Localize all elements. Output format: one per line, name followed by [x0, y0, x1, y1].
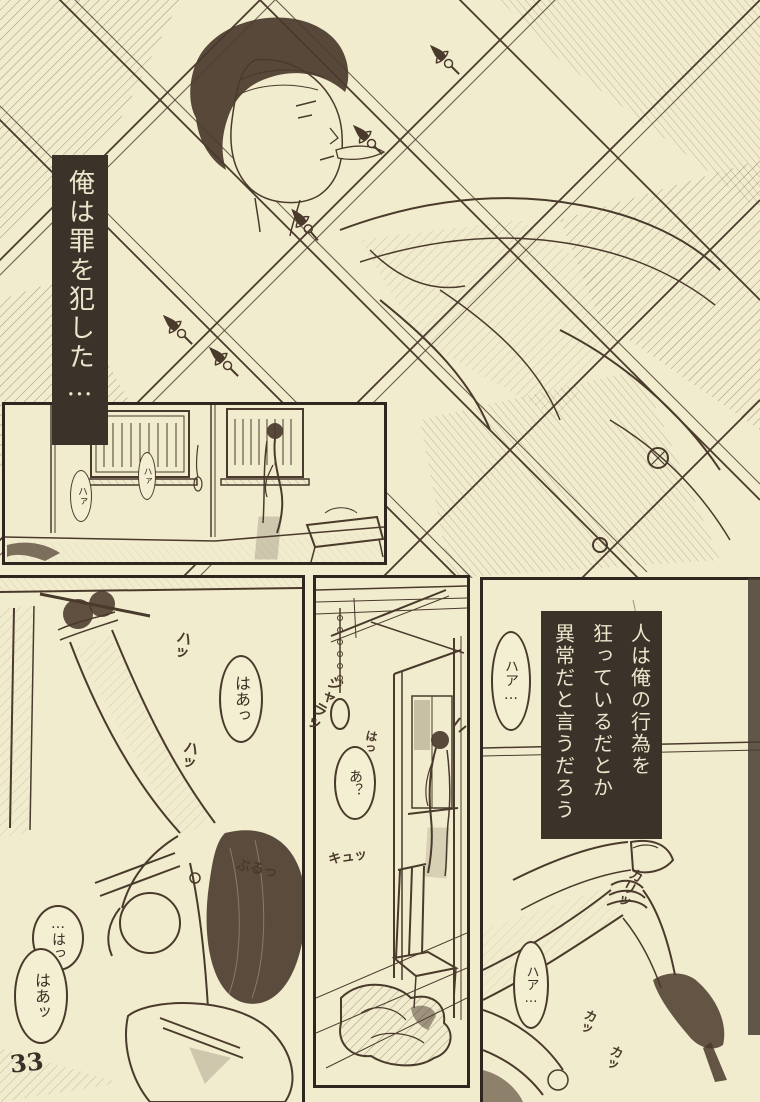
bubble-breath-right-bottom-text: ハア… [522, 965, 541, 1006]
bubble-breath-right-top: ハア… [491, 631, 531, 731]
bubble-faint-breath-1-text: ハァ [74, 486, 89, 506]
caption-monologue-2-line-1: 人は俺の行為を [621, 623, 659, 839]
caption-monologue-2-line-3: 異常だと言うだろう [545, 623, 583, 839]
figure-at-corridor-end-art [425, 718, 466, 878]
panel-bottom-middle-corridor [313, 575, 470, 1088]
caption-monologue-1-text: 俺は罪を犯した… [62, 155, 99, 405]
page-number: 33 [9, 1046, 45, 1078]
bubble-breath-right-top-text: ハア… [501, 659, 521, 703]
bubble-surprise: あ？ [334, 746, 376, 820]
bubble-gasp-haah: はあッ [14, 948, 68, 1044]
caption-monologue-2-line-2: 狂っているだとか [583, 623, 621, 839]
high-heel-shoe-art [653, 973, 724, 1048]
bubble-faint-breath-1: ハァ [70, 470, 92, 522]
bubble-gasp-haah-text: はあッ [29, 972, 53, 1020]
scan-edge-strip [748, 578, 760, 1035]
corridor-art [316, 578, 467, 1085]
crumpled-clothes-art [340, 985, 451, 1066]
bubble-faint-breath-2-text: ハァ [141, 467, 154, 485]
bubble-faint-breath-2: ハァ [138, 452, 156, 500]
caption-monologue-2: 人は俺の行為を 狂っているだとか 異常だと言うだろう [541, 611, 662, 839]
bubble-gasp-left-text: はあっ [229, 675, 253, 723]
bubble-gasp-left: はあっ [219, 655, 263, 743]
hair-mass-art [483, 1070, 523, 1102]
bubble-breath-right-bottom: ハア… [513, 941, 549, 1029]
caption-monologue-2-text: 人は俺の行為を 狂っているだとか 異常だと言うだろう [545, 623, 659, 839]
manga-page: 俺は罪を犯した… [0, 0, 760, 1102]
bubble-surprise-text: あ？ [345, 769, 365, 797]
caption-monologue-1: 俺は罪を犯した… [52, 155, 108, 445]
